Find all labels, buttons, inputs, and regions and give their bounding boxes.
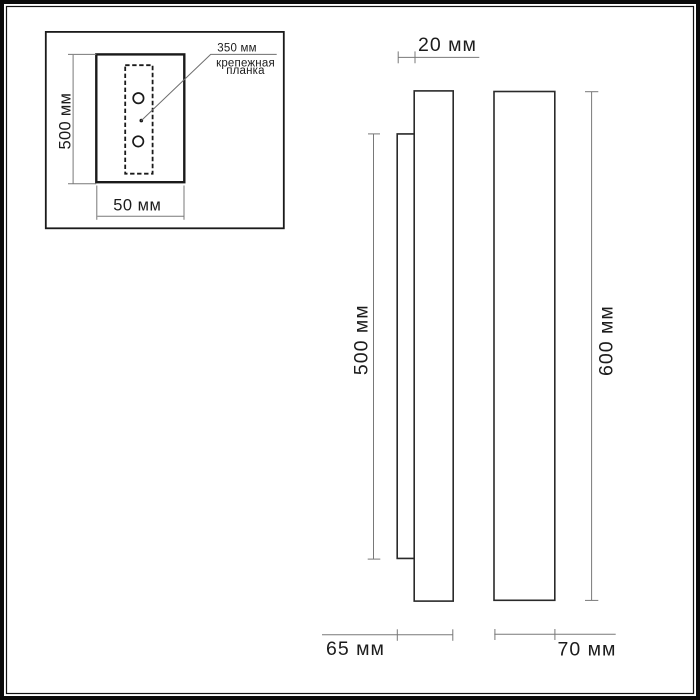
- svg-text:500 мм: 500 мм: [350, 304, 372, 375]
- svg-text:600 мм: 600 мм: [595, 305, 617, 376]
- svg-text:500 мм: 500 мм: [57, 93, 75, 150]
- svg-text:20 мм: 20 мм: [418, 34, 477, 56]
- svg-text:65 мм: 65 мм: [326, 638, 385, 660]
- svg-text:планка: планка: [226, 65, 265, 77]
- svg-text:350 мм: 350 мм: [217, 42, 256, 54]
- svg-text:50 мм: 50 мм: [113, 196, 161, 214]
- svg-text:70 мм: 70 мм: [558, 638, 617, 660]
